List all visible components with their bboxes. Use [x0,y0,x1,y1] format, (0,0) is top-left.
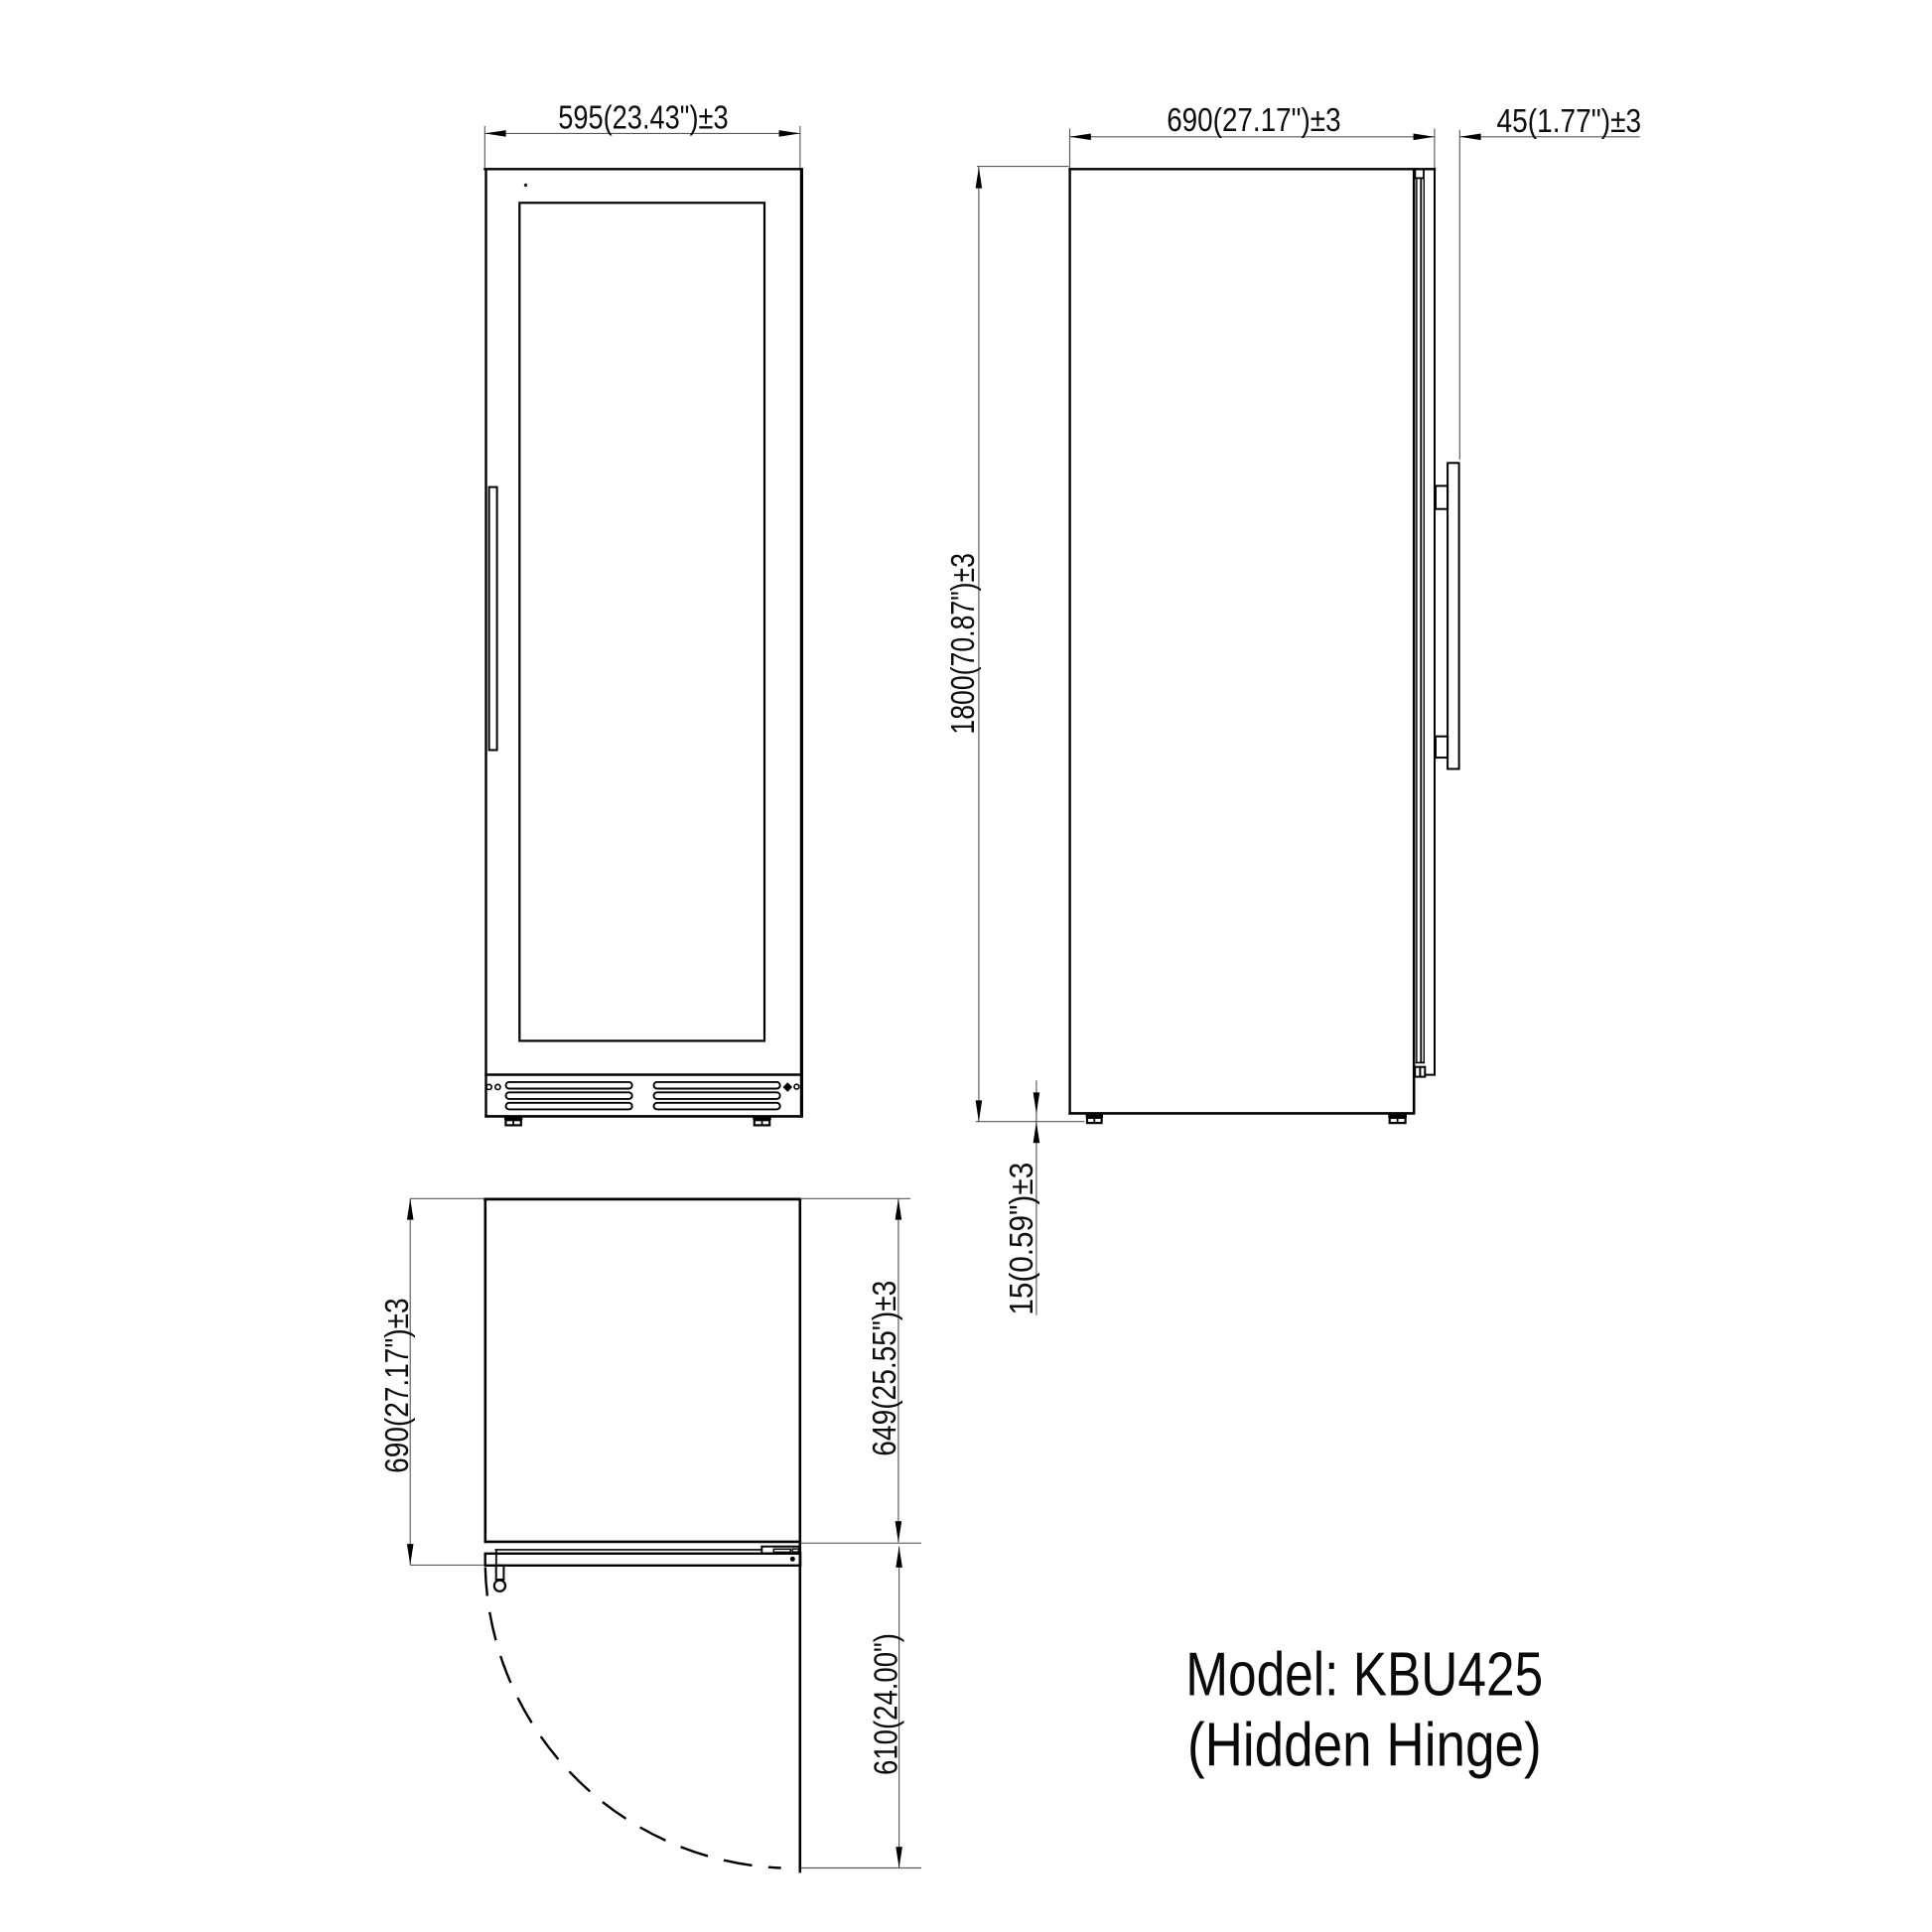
svg-text:610(24.00"): 610(24.00") [868,1633,904,1775]
svg-text:15(0.59")±3: 15(0.59")±3 [1003,1163,1039,1315]
svg-text:690(27.17")±3: 690(27.17")±3 [378,1298,415,1473]
svg-text:Model: KBU425: Model: KBU425 [1185,1641,1543,1710]
svg-text:(Hidden Hinge): (Hidden Hinge) [1187,1712,1542,1780]
svg-text:595(23.43")±3: 595(23.43")±3 [558,99,728,136]
svg-text:690(27.17")±3: 690(27.17")±3 [1167,101,1340,138]
svg-text:45(1.77")±3: 45(1.77")±3 [1497,102,1642,139]
svg-text:1800(70.87")±3: 1800(70.87")±3 [944,553,981,735]
svg-text:649(25.55")±3: 649(25.55")±3 [866,1281,902,1456]
